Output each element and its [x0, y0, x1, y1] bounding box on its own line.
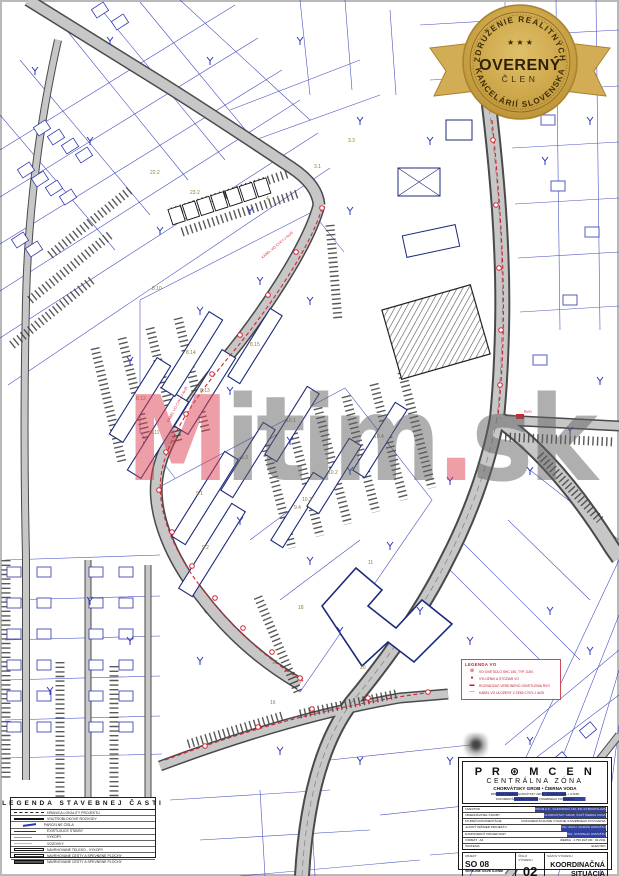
company-logo: P R ⊛ M C E N — [465, 765, 605, 778]
info-row-value: ELEKTRO — [591, 844, 605, 849]
legend-row-label: NAVRHOVANÉ TELESO - VÝKOPY — [47, 848, 103, 852]
legend-row: NAVRHOVANÉ CESTY A SPEVNENÉ PLOCHY — [11, 859, 155, 865]
vo-legend-row: ⊗ VO SVIETIDLO SHC 150, TYP. OZN. — [465, 668, 557, 675]
vo-row-label: VÝLOŽNÍK A STOŽIAR VO — [479, 677, 519, 681]
legend-swatch — [14, 812, 44, 813]
drawing-name-cell: NÁZOV VÝKRESU KOORDINAČNÁ SITUÁCIA — [545, 853, 607, 876]
info-row-value: ING. ARCH. MARIÁN HORVÁTH — [561, 825, 605, 830]
vo-legend-row: ● VÝLOŽNÍK A STOŽIAR VO — [465, 675, 557, 682]
title-block: P R ⊛ M C E N CENTRÁLNA ZÓNA CHORVÁTSKY … — [458, 757, 612, 870]
info-row: PROFESIA ELEKTRO — [463, 843, 607, 849]
area-label: 18 — [298, 605, 304, 611]
info-row-label: HLAVNÝ INŽINIER PROJEKTU — [465, 825, 507, 830]
area-label: 10.2 — [328, 470, 338, 476]
title-block-header: P R ⊛ M C E N CENTRÁLNA ZÓNA CHORVÁTSKY … — [462, 761, 608, 804]
project-subline: DOKUMENTÁCIA PRE VYDANIE STAVEBNÉHO POVO… — [465, 797, 605, 801]
area-label: 3.3 — [348, 138, 355, 144]
drawing-name: KOORDINAČNÁ SITUÁCIA — [547, 861, 605, 876]
vo-legend-row: — KÁBEL VO ULOŽENÝ V ZEMI CYKY-J 4x25 — [465, 689, 557, 696]
area-label: 8.14 — [186, 350, 196, 356]
legend-row-label: NAVRHOVANÉ CESTY A SPEVNENÉ PLOCHY — [47, 854, 122, 858]
area-label: 10.4 — [374, 434, 384, 440]
area-label: 10.3 — [302, 497, 312, 503]
area-label: 8.10 — [152, 286, 162, 292]
legend-swatch — [23, 823, 36, 827]
area-label: 22.2 — [150, 170, 160, 176]
legend-row-label: VÝKOPY — [47, 835, 61, 839]
project-title: CENTRÁLNA ZÓNA — [465, 778, 605, 785]
drawing-name-label: NÁZOV VÝKRESU — [547, 854, 605, 858]
badge-stars: ★ ★ ★ — [507, 38, 533, 47]
vo-symbol-icon: ● — [465, 676, 479, 681]
area-label: 8.13 — [200, 388, 210, 394]
info-row-value: CHORVÁTSKY GROB, ČASŤ ČIERNA VODA — [544, 813, 605, 818]
area-label: 8.11 — [150, 430, 159, 436]
area-label: 3.1 — [314, 164, 321, 170]
info-row-label: PROFESIA — [465, 844, 480, 849]
vo-symbol-icon: ▬ — [465, 683, 479, 688]
legend-swatch — [14, 848, 44, 851]
legend-swatch — [14, 860, 44, 863]
area-label: 9.1 — [196, 491, 203, 497]
verified-member-badge: ZDRUŽENIE REALITNÝCH KANCELÁRIÍ SLOVENSK… — [428, 0, 612, 128]
vo-legend-row: ▬ ROZVÁDZAČ VEREJNÉHO OSVETLENIA RVO — [465, 682, 557, 689]
construction-legend: LEGENDA STAVEBNEJ ČASTI HRANICA LOKALITY… — [10, 797, 156, 858]
area-label: 4 — [266, 196, 269, 202]
stamp-smudge — [464, 733, 488, 759]
title-block-bottom: OBJEKT SO 08 VEREJNÉ OSVETLENIE ČÍSLO VÝ… — [462, 852, 608, 876]
legend-row-label: VOZOVKY — [47, 842, 64, 846]
badge-title: OVERENÝ — [479, 55, 561, 74]
legend-row-label: VNÚTROBLOKOVÉ ROZVODY — [47, 817, 97, 821]
info-row-value: DOKUMENTÁCIA PRE VYDANIE STAVEBNÉHO POVO… — [521, 819, 605, 824]
site-plan-map — [0, 0, 619, 876]
area-label: 17 — [272, 660, 278, 666]
info-row-value: MIERKA : 1:750 DÁTUM : 04.2011 — [560, 838, 606, 843]
area-label: 20 — [360, 665, 366, 671]
info-row-label: ZODPOVEDNÝ PROJEKTANT — [465, 832, 506, 837]
legend-row-label: EXISTUJÚCE STAVBY — [47, 829, 83, 833]
area-label: 16 — [270, 700, 276, 706]
legend-title: LEGENDA STAVEBNEJ ČASTI — [11, 798, 155, 810]
legend-swatch — [14, 831, 36, 832]
area-label: 8.15 — [250, 342, 260, 348]
drawing-number-label: ČÍSLO VÝKRESU — [518, 854, 542, 862]
legend-swatch — [14, 854, 44, 857]
info-row-label: INVESTOR — [465, 807, 480, 812]
vo-legend: LEGENDA VO ⊗ VO SVIETIDLO SHC 150, TYP. … — [461, 659, 561, 700]
badge-subtitle: ČLEN — [502, 74, 539, 84]
area-label: 10.1 — [286, 418, 296, 424]
info-row-label: OBJEDNÁVATEĽ STAVBY — [465, 813, 500, 818]
drawing-number-cell: ČÍSLO VÝKRESU 02 — [516, 853, 545, 876]
area-label: 23.2 — [190, 190, 200, 196]
vo-row-label: VO SVIETIDLO SHC 150, TYP. OZN. — [479, 670, 534, 674]
object-cell: OBJEKT SO 08 VEREJNÉ OSVETLENIE — [463, 853, 516, 876]
info-row: STUPEŇ DOKUMENTÁCIE DOKUMENTÁCIA PRE VYD… — [463, 818, 607, 824]
info-row-label: STUPEŇ DOKUMENTÁCIE — [465, 819, 502, 824]
object-number: SO 08 — [465, 859, 513, 869]
legend-swatch — [14, 818, 44, 820]
project-location: CHORVÁTSKY GROB • ČIERNA VODA — [465, 786, 605, 791]
vo-row-label: ROZVÁDZAČ VEREJNÉHO OSVETLENIA RVO — [479, 684, 550, 688]
object-name: VEREJNÉ OSVETLENIE — [465, 869, 513, 873]
info-row-value: PROM A.S., VAJNORSKÁ 136, 831 04 BRATISL… — [535, 807, 605, 812]
legend-row-label: NAVRHOVANÉ CESTY A SPEVNENÉ PLOCHY — [47, 860, 122, 864]
legend-swatch — [14, 843, 32, 844]
info-row-value: ING. STANISLAV HORVÁTH — [567, 832, 606, 837]
object-label: OBJEKT — [465, 854, 513, 858]
legend-row-label: HRANICA LOKALITY PROJEKTU — [47, 811, 100, 815]
area-label: 11 — [368, 560, 373, 566]
legend-row-label: PARCELNÉ ČÍSLA — [44, 823, 74, 827]
cable-annotation: RVO — [524, 410, 532, 414]
area-label: 9.2 — [202, 545, 209, 551]
project-subline: PRÍPRAVA ÚZEMIA CHORVÁTSKY GROB – ČIERNA… — [465, 792, 605, 796]
title-block-info-table: INVESTOR PROM A.S., VAJNORSKÁ 136, 831 0… — [462, 806, 608, 851]
vo-row-label: KÁBEL VO ULOŽENÝ V ZEMI CYKY-J 4x25 — [479, 691, 544, 695]
vo-symbol-icon: — — [465, 690, 479, 695]
vo-symbol-icon: ⊗ — [465, 669, 479, 674]
legend-swatch — [14, 837, 32, 838]
site-plan-page: 22.223.243.13.38.108.148.138.128.118.151… — [0, 0, 619, 876]
drawing-number: 02 — [518, 864, 542, 876]
info-row-label: FORMÁT : A2 — [465, 838, 484, 843]
area-label: 9.3 — [241, 455, 248, 461]
vo-legend-title: LEGENDA VO — [465, 662, 557, 667]
area-label: 8.12 — [136, 396, 146, 402]
area-label: 9.4 — [294, 505, 301, 511]
